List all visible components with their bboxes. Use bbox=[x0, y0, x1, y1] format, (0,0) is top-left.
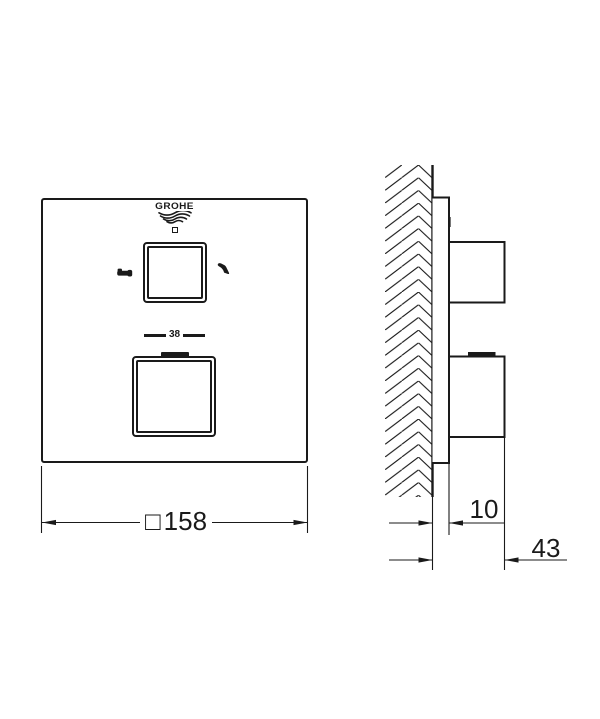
plate-depth-dimension-label: 10 bbox=[470, 496, 499, 522]
scale-dash-right bbox=[183, 334, 205, 337]
stop-tab-side-profile bbox=[468, 352, 496, 357]
technical-drawing-canvas: GROHE bbox=[0, 0, 600, 719]
temperature-38-label: 38 bbox=[169, 330, 180, 340]
knob-depth-dimension-label: 43 bbox=[532, 535, 561, 561]
diverter-knob-side-profile bbox=[449, 242, 505, 303]
thermostat-knob[interactable] bbox=[132, 356, 216, 437]
width-dimension-value: 158 bbox=[164, 508, 207, 534]
grohe-wave-icon bbox=[158, 211, 192, 224]
hand-shower-icon bbox=[216, 262, 232, 278]
scale-dash-left bbox=[144, 334, 166, 337]
thermostat-knob-inner-edge bbox=[136, 360, 212, 433]
side-view-profiles bbox=[433, 198, 505, 464]
wall-hatch-pattern bbox=[385, 165, 432, 497]
logo-square-mark bbox=[172, 227, 178, 233]
diverter-knob[interactable] bbox=[143, 242, 207, 303]
square-symbol: □ bbox=[145, 508, 161, 534]
grohe-logo: GROHE bbox=[43, 202, 306, 233]
bath-spout-icon bbox=[116, 266, 133, 280]
diverter-knob-inner-edge bbox=[147, 246, 203, 299]
faceplate-front-view: GROHE bbox=[41, 198, 308, 463]
grohe-logo-text: GROHE bbox=[155, 202, 194, 211]
width-dimension-label: □ 158 bbox=[143, 508, 209, 534]
dim-43-arrows bbox=[419, 557, 519, 562]
dim-10-arrows bbox=[419, 520, 464, 525]
temperature-scale: 38 bbox=[43, 330, 306, 340]
faceplate-side-profile bbox=[433, 198, 450, 464]
wall-section bbox=[385, 165, 433, 497]
thermostat-knob-side-profile bbox=[449, 357, 505, 438]
